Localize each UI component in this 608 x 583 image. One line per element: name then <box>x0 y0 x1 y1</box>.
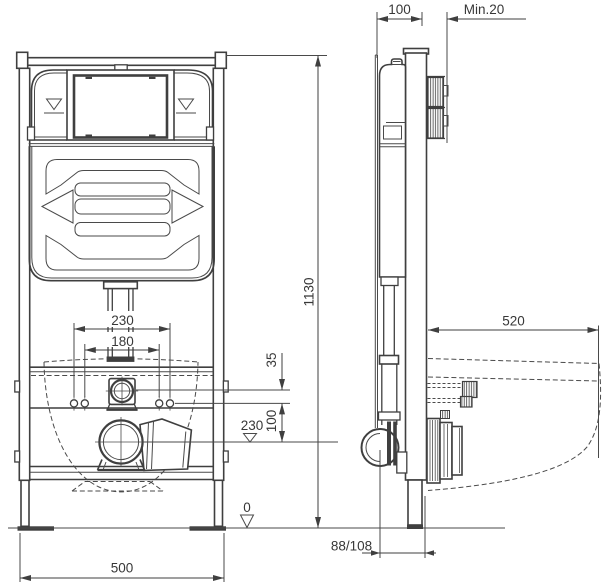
inlet-flange <box>106 377 138 410</box>
cistern-body <box>29 144 215 281</box>
side-flush-pipe <box>379 286 401 426</box>
water-level-icon <box>176 99 196 113</box>
left-post-cap <box>17 52 28 68</box>
waste-outlet <box>95 417 191 470</box>
dim-label-inlet-offset: 35 <box>264 352 279 367</box>
dim-label-bowl-projection: 520 <box>502 314 525 329</box>
cistern-profile <box>380 59 406 286</box>
frame-rail-profile <box>406 53 427 480</box>
right-post <box>213 68 223 480</box>
side-view <box>362 12 601 529</box>
outlet-connector-rings <box>427 411 462 484</box>
dim-label-frame-height: 1130 <box>302 277 317 306</box>
dim-frame-height: 1130 <box>226 56 327 529</box>
flush-actuator-unit <box>427 77 448 139</box>
dim-label-floor-level: 0 <box>243 500 251 515</box>
front-view <box>15 52 228 530</box>
dim-frame-width: 500 <box>20 533 224 582</box>
side-foot <box>408 480 422 525</box>
dim-label-outlet-wall-offset: 88/108 <box>331 539 372 554</box>
wall-anchor-rods <box>428 382 478 408</box>
dim-label-bolt-spacing-inner: 180 <box>111 334 134 349</box>
technical-drawing-canvas: 230 180 1130 35 100 230 0 <box>0 0 608 583</box>
rib-pattern <box>42 160 203 271</box>
dim-label-bolt-spacing-outer: 230 <box>111 313 134 328</box>
datum-triangle-icon <box>244 434 257 443</box>
cistern-top-section <box>28 65 214 140</box>
installation-drawing: 230 180 1130 35 100 230 0 <box>0 0 608 583</box>
dim-label-frame-width: 500 <box>111 561 134 576</box>
side-outlet-elbow <box>362 422 407 474</box>
water-level-icon <box>44 99 64 113</box>
dim-label-min-wall: Min.20 <box>464 2 505 17</box>
dim-frame-depth: 100 Min.20 <box>377 2 526 58</box>
frame-feet <box>18 480 227 530</box>
access-panel <box>67 70 174 140</box>
dim-label-bolt-outlet-offset: 100 <box>264 410 279 433</box>
dim-floor-datum: 0 <box>241 500 254 528</box>
dim-label-outlet-level: 230 <box>241 418 264 433</box>
datum-triangle-icon <box>241 515 254 528</box>
dim-label-frame-depth: 100 <box>388 2 411 17</box>
right-post-cap <box>215 52 226 68</box>
